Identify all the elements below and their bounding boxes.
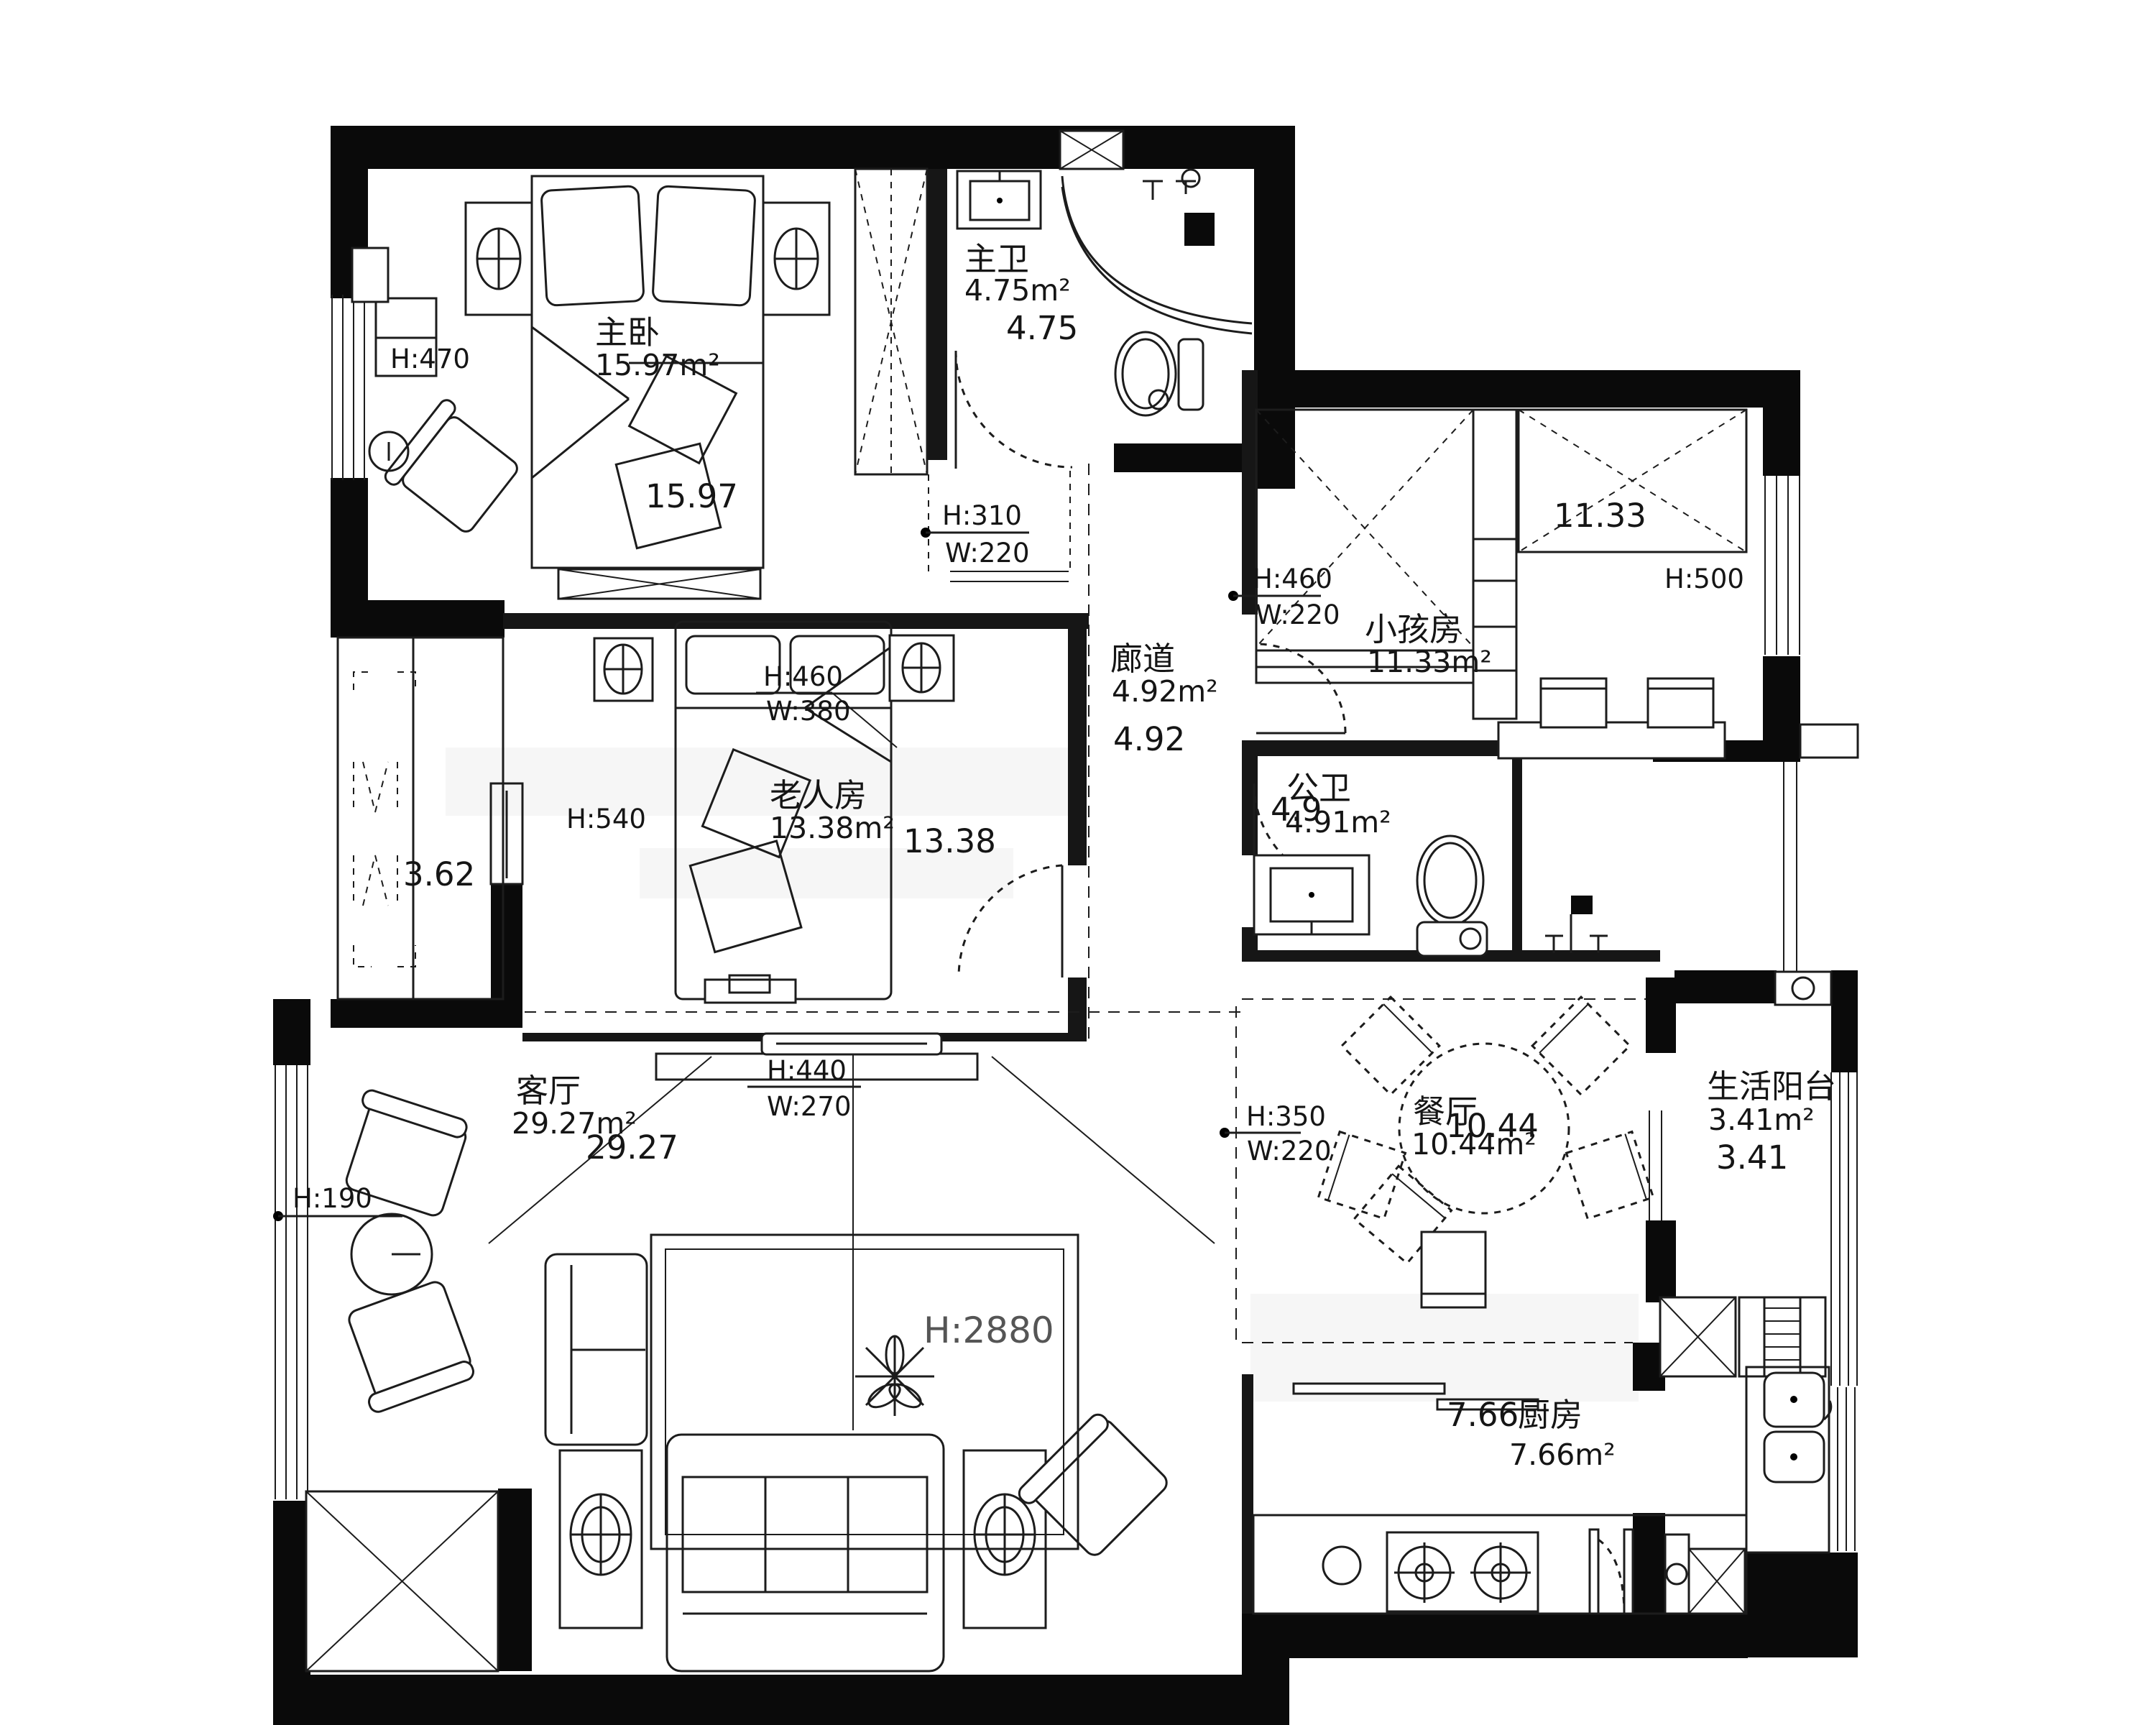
- window-dining-right: [1784, 762, 1797, 976]
- wardrobe: [855, 169, 927, 474]
- room-dim-kitchen: 7.66: [1447, 1396, 1519, 1434]
- window-bath-top: [1060, 131, 1123, 169]
- window-balcony-right: [1831, 1072, 1857, 1386]
- washing-machine: [1739, 1297, 1825, 1376]
- room-label-living: 客厅: [516, 1072, 581, 1110]
- height-elder-room: H:540: [566, 804, 646, 834]
- room-dim-elder-room: 13.38: [903, 822, 996, 860]
- room-dim-balcony: 3.41: [1716, 1138, 1788, 1177]
- door-master-bath: [956, 351, 1072, 469]
- shower-fixtures: [1545, 896, 1608, 953]
- room-area-master-bath: 4.75m²: [964, 273, 1071, 308]
- room-area-dining: 10.44m²: [1411, 1127, 1537, 1161]
- room-label-balcony: 生活阳台: [1707, 1067, 1836, 1105]
- labels: 主卧 15.97m² 15.97 H:470 主卫 4.75m² 4.75 小孩…: [292, 240, 1836, 1472]
- door-kids-room: [1256, 644, 1345, 733]
- height-master-bedroom: H:470: [390, 344, 470, 374]
- sofa: [667, 1435, 944, 1671]
- tv-stand: [705, 980, 796, 1003]
- room-dim-master-bedroom: 15.97: [645, 477, 738, 515]
- balcony-drain-box: [1775, 972, 1831, 1005]
- ann-elder-bed-w: W:380: [766, 696, 851, 727]
- room-dim-corridor: 4.92: [1113, 720, 1185, 758]
- ann-dining-h: H:350: [1246, 1101, 1326, 1132]
- room-label-elder-room: 老人房: [770, 776, 867, 814]
- room-label-kids-room: 小孩房: [1365, 610, 1462, 648]
- wardrobe-strip: [338, 638, 503, 999]
- room-dim-kids-room: 11.33: [1554, 497, 1646, 535]
- public-bath-fixtures: [1254, 836, 1608, 956]
- toilet-icon: [1115, 332, 1203, 415]
- armchair: [338, 1279, 476, 1414]
- armchair: [382, 397, 525, 540]
- room-area-corridor: 4.92m²: [1112, 674, 1218, 709]
- pillow: [653, 186, 755, 306]
- dim-closet: 3.62: [403, 855, 475, 893]
- room-label-corridor: 廊道: [1110, 640, 1175, 678]
- ann-living-ceiling: H:2880: [923, 1310, 1054, 1351]
- ann-tv-wall-h: H:440: [767, 1055, 847, 1086]
- window-master-left: [332, 295, 364, 480]
- ann-dining-w: W:220: [1247, 1136, 1332, 1167]
- ann-corridor-top-w: W:220: [945, 538, 1030, 569]
- room-area-master-bedroom: 15.97m²: [595, 348, 720, 382]
- toilet-icon: [1417, 836, 1487, 956]
- shower-head: [1184, 213, 1215, 246]
- height-kids-room: H:500: [1664, 563, 1744, 594]
- room-area-kitchen: 7.66m²: [1509, 1437, 1616, 1472]
- room-dim-living: 29.27: [586, 1128, 678, 1167]
- ann-living-window: H:190: [292, 1183, 372, 1214]
- window-kitchen-right: [1829, 1387, 1855, 1551]
- room-area-balcony: 3.41m²: [1708, 1103, 1815, 1137]
- room-area-kids-room: 11.33m²: [1367, 645, 1492, 679]
- ann-corridor-top-h: H:310: [942, 500, 1022, 531]
- ann-tv-wall-w: W:270: [767, 1091, 852, 1122]
- window-balcony-left: [1649, 1110, 1662, 1220]
- floor-plan-page: 主卧 15.97m² 15.97 H:470 主卫 4.75m² 4.75 小孩…: [0, 0, 2156, 1725]
- room-area-elder-room: 13.38m²: [770, 811, 895, 845]
- pillow: [541, 186, 644, 306]
- ann-kids-door-w: W:220: [1256, 599, 1340, 630]
- chair: [1541, 678, 1606, 727]
- living-room-furniture: [306, 1034, 1215, 1671]
- master-bedroom-furniture: [352, 169, 927, 599]
- side-cabinet: [1422, 1232, 1485, 1307]
- plant: [855, 1336, 934, 1416]
- window-living-left: [275, 1065, 308, 1499]
- pipe-tab: [1800, 724, 1858, 758]
- room-label-master-bedroom: 主卧: [595, 313, 660, 351]
- ann-kids-door-h: H:460: [1253, 563, 1332, 594]
- balcony-fixtures: [1660, 1297, 1825, 1376]
- ac-box-living: [306, 1491, 498, 1671]
- wall-shelf: [352, 248, 388, 302]
- room-area-public-bath: 4.91m²: [1285, 805, 1391, 839]
- floor-plan: 主卧 15.97m² 15.97 H:470 主卫 4.75m² 4.75 小孩…: [0, 0, 2156, 1725]
- room-dim-master-bath: 4.75: [1006, 309, 1078, 347]
- chair: [1648, 678, 1713, 727]
- ann-elder-bed-h: H:460: [763, 661, 843, 692]
- dresser: [376, 298, 436, 338]
- shower-glass: [1062, 176, 1252, 323]
- room-label-kitchen: 厨房: [1518, 1396, 1583, 1434]
